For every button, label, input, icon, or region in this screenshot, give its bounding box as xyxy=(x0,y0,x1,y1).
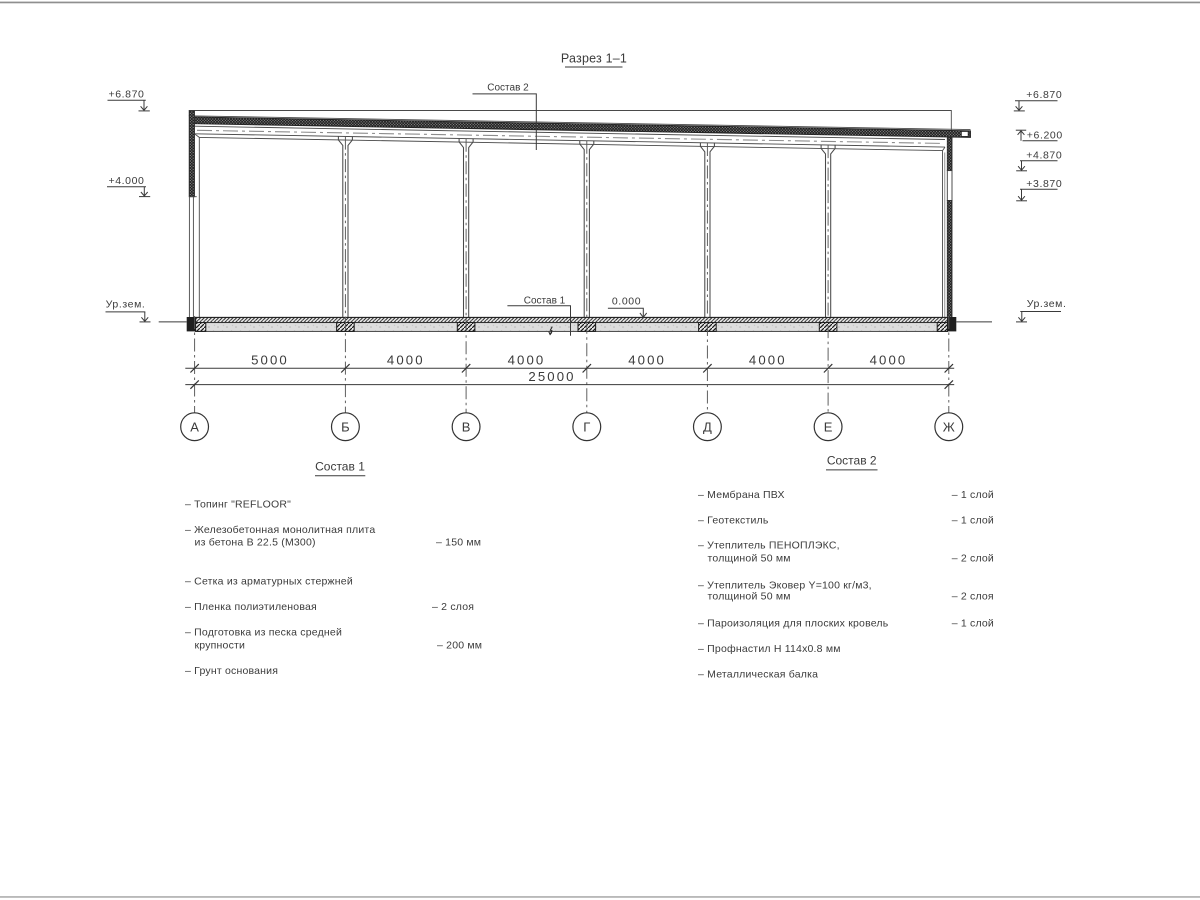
svg-text:– Пароизоляция для плоских кро: – Пароизоляция для плоских кровель xyxy=(698,617,889,629)
svg-text:– Утеплитель ПЕНОПЛЭКС,: – Утеплитель ПЕНОПЛЭКС, xyxy=(698,540,840,552)
svg-text:Разрез 1–1: Разрез 1–1 xyxy=(561,52,627,66)
svg-text:Состав 2: Состав 2 xyxy=(487,83,529,94)
svg-text:– Пленка полиэтиленовая: – Пленка полиэтиленовая xyxy=(185,601,317,613)
svg-text:толщиной 50 мм: толщиной 50 мм xyxy=(708,590,791,602)
svg-text:Б: Б xyxy=(341,419,350,434)
svg-text:– Подготовка из песка средней: – Подготовка из песка средней xyxy=(185,627,342,639)
svg-text:+6.870: +6.870 xyxy=(108,89,144,101)
svg-text:– Металлическая балка: – Металлическая балка xyxy=(698,669,818,681)
svg-text:5000: 5000 xyxy=(251,353,289,368)
svg-text:Состав 1: Состав 1 xyxy=(315,460,365,474)
svg-text:4000: 4000 xyxy=(387,353,425,368)
svg-text:– Сетка из арматурных стержней: – Сетка из арматурных стержней xyxy=(185,576,353,588)
svg-text:Ур.зем.: Ур.зем. xyxy=(1027,298,1067,310)
svg-text:Д: Д xyxy=(703,419,712,434)
svg-text:– 1 слой: – 1 слой xyxy=(952,617,994,629)
svg-text:А: А xyxy=(190,419,199,434)
svg-text:В: В xyxy=(462,419,471,434)
svg-text:Ур.зем.: Ур.зем. xyxy=(106,299,146,311)
svg-text:+6.200: +6.200 xyxy=(1027,129,1063,141)
svg-text:– Грунт основания: – Грунт основания xyxy=(185,665,278,677)
svg-text:+3.870: +3.870 xyxy=(1026,178,1062,190)
svg-text:толщиной 50 мм: толщиной 50 мм xyxy=(708,552,791,564)
svg-text:+6.870: +6.870 xyxy=(1026,89,1062,101)
svg-text:– Топинг "REFLOOR": – Топинг "REFLOOR" xyxy=(185,498,291,510)
svg-text:– 150 мм: – 150 мм xyxy=(436,537,481,549)
svg-text:– Мембрана ПВХ: – Мембрана ПВХ xyxy=(698,489,785,501)
svg-text:крупности: крупности xyxy=(195,639,246,651)
svg-text:4000: 4000 xyxy=(749,353,787,368)
svg-text:Ж: Ж xyxy=(943,419,955,434)
svg-text:– Профнастил Н 114х0.8 мм: – Профнастил Н 114х0.8 мм xyxy=(698,643,841,655)
svg-text:4000: 4000 xyxy=(628,353,666,368)
svg-text:– 1 слой: – 1 слой xyxy=(952,515,994,527)
svg-text:– 1 слой: – 1 слой xyxy=(952,489,994,501)
svg-text:из бетона В 22.5 (М300): из бетона В 22.5 (М300) xyxy=(195,537,316,549)
svg-text:+4.000: +4.000 xyxy=(108,175,144,187)
svg-text:Г: Г xyxy=(583,419,590,434)
svg-text:– Геотекстиль: – Геотекстиль xyxy=(698,515,769,527)
svg-text:Состав 1: Состав 1 xyxy=(524,295,566,306)
svg-text:Состав 2: Состав 2 xyxy=(827,454,877,468)
svg-text:0.000: 0.000 xyxy=(612,296,641,308)
svg-text:Е: Е xyxy=(824,419,833,434)
svg-text:+4.870: +4.870 xyxy=(1026,149,1062,161)
svg-text:25000: 25000 xyxy=(528,369,575,384)
svg-text:– 2 слоя: – 2 слоя xyxy=(952,590,994,602)
svg-text:– 2 слой: – 2 слой xyxy=(952,552,994,564)
svg-text:– Железобетонная монолитная п: – Железобетонная монолитная плита xyxy=(185,524,375,536)
svg-text:– 200 мм: – 200 мм xyxy=(437,639,482,651)
svg-text:4000: 4000 xyxy=(870,353,908,368)
svg-text:– 2 слоя: – 2 слоя xyxy=(432,601,474,613)
svg-text:4000: 4000 xyxy=(508,353,546,368)
